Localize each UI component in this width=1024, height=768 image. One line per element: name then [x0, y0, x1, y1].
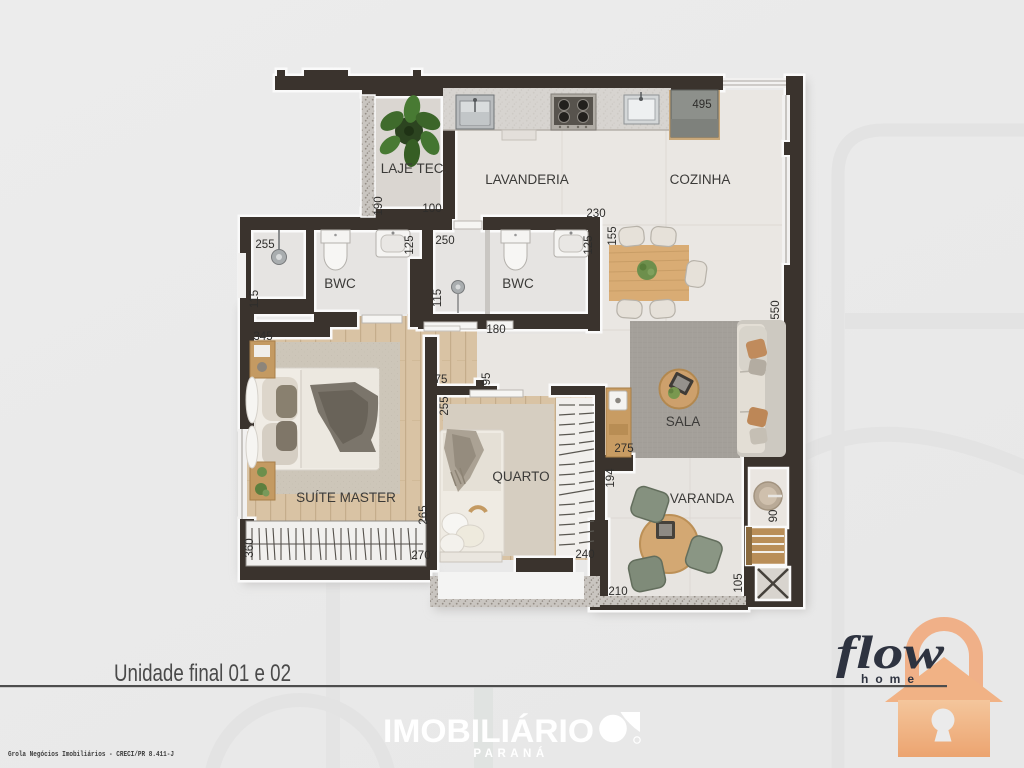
svg-text:155: 155: [607, 226, 619, 245]
svg-text:125: 125: [583, 235, 595, 254]
svg-text:SALA: SALA: [666, 414, 701, 429]
svg-text:Unidade final 01 e 02: Unidade final 01 e 02: [114, 660, 291, 687]
svg-text:230: 230: [586, 208, 605, 220]
svg-text:115: 115: [249, 290, 261, 308]
svg-text:LAJE TEC.: LAJE TEC.: [381, 161, 448, 176]
svg-text:115: 115: [432, 289, 444, 307]
svg-text:PARANÁ: PARANÁ: [473, 747, 548, 760]
svg-text:105: 105: [733, 573, 745, 592]
svg-text:home: home: [861, 672, 921, 686]
svg-text:180: 180: [486, 324, 505, 336]
svg-text:275: 275: [614, 443, 633, 455]
svg-text:250: 250: [435, 235, 454, 247]
svg-text:345: 345: [253, 331, 272, 343]
svg-text:Grola Negócios Imobiliários -: Grola Negócios Imobiliários - CRECI/PR 8…: [8, 751, 174, 759]
svg-text:360: 360: [244, 538, 256, 557]
svg-text:BWC: BWC: [502, 276, 534, 291]
svg-text:BWC: BWC: [324, 276, 356, 291]
svg-text:SUÍTE MASTER: SUÍTE MASTER: [296, 490, 396, 505]
svg-text:194: 194: [605, 468, 617, 488]
svg-text:270: 270: [411, 550, 430, 562]
svg-text:95: 95: [481, 373, 493, 386]
svg-text:265: 265: [418, 505, 430, 524]
svg-text:240: 240: [575, 549, 594, 561]
svg-text:100: 100: [422, 203, 441, 215]
svg-text:255: 255: [255, 239, 274, 251]
svg-text:COZINHA: COZINHA: [670, 172, 731, 187]
svg-text:210: 210: [608, 586, 627, 598]
svg-text:VARANDA: VARANDA: [670, 491, 734, 506]
svg-text:495: 495: [692, 99, 711, 111]
svg-text:255: 255: [439, 396, 451, 415]
svg-text:550: 550: [770, 300, 782, 319]
svg-text:125: 125: [404, 235, 416, 254]
svg-text:LAVANDERIA: LAVANDERIA: [485, 172, 569, 187]
svg-text:QUARTO: QUARTO: [492, 469, 549, 484]
svg-text:75: 75: [435, 374, 448, 386]
svg-text:IMOBILIÁRIO: IMOBILIÁRIO: [383, 713, 594, 749]
svg-text:90: 90: [768, 510, 780, 523]
svg-text:190: 190: [373, 196, 385, 215]
